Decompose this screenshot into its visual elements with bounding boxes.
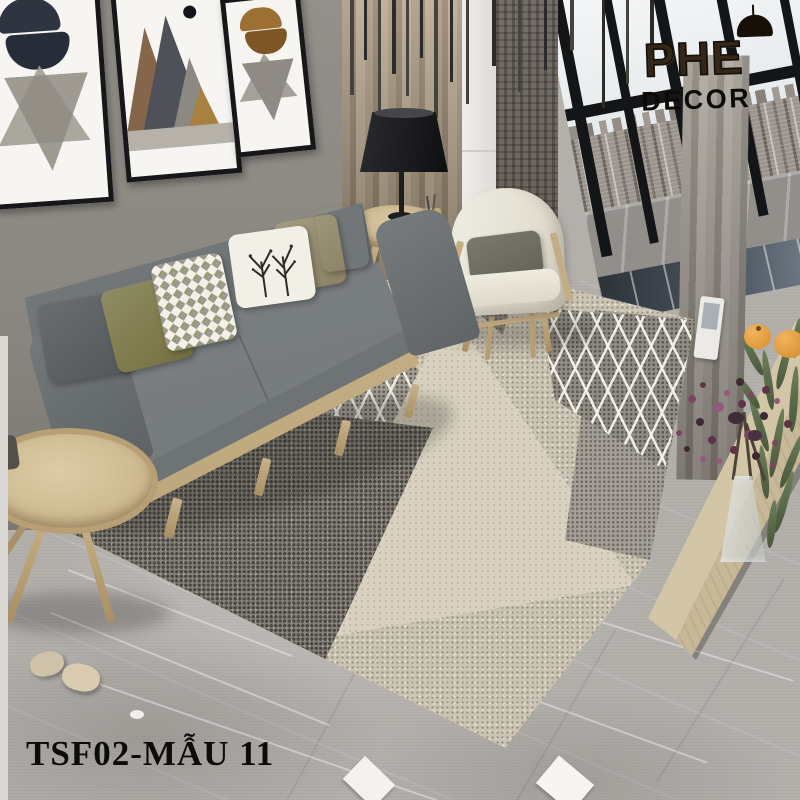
flower-petal <box>772 440 778 446</box>
flower-petal <box>724 390 730 396</box>
flower-petal <box>696 418 704 426</box>
brand-logo: PHE DECOR <box>636 3 800 127</box>
flower-petal <box>700 382 706 388</box>
flower-petal <box>748 392 754 398</box>
flower-petal <box>762 386 770 394</box>
flower-petal <box>752 452 760 460</box>
flower-petal <box>708 436 716 444</box>
flower-petal <box>738 400 746 408</box>
flower-petal <box>676 430 682 436</box>
flower-petal <box>688 395 696 403</box>
flower-bud <box>728 412 744 424</box>
flower-petal <box>774 398 780 404</box>
living-room-product-photo: PHE DECOR TSF02-MẪU 11 <box>0 0 800 800</box>
flower-petal <box>714 402 724 412</box>
flower-petal <box>784 420 792 428</box>
product-code-caption: TSF02-MẪU 11 <box>26 734 274 774</box>
flower-petal <box>736 378 744 386</box>
flower-petal <box>716 458 722 464</box>
fruit-stem <box>756 326 761 331</box>
fruit <box>774 330 800 358</box>
logo-text-line1: PHE <box>643 33 744 83</box>
flower-petal <box>730 446 738 454</box>
wall-corner-strip <box>0 336 8 800</box>
flower-petal <box>684 446 690 452</box>
flower-petal <box>760 412 768 420</box>
flower-petal <box>770 462 776 468</box>
logo-text-line2: DECOR <box>641 85 752 116</box>
flower-petal <box>700 456 706 462</box>
flower-bud <box>748 430 762 441</box>
